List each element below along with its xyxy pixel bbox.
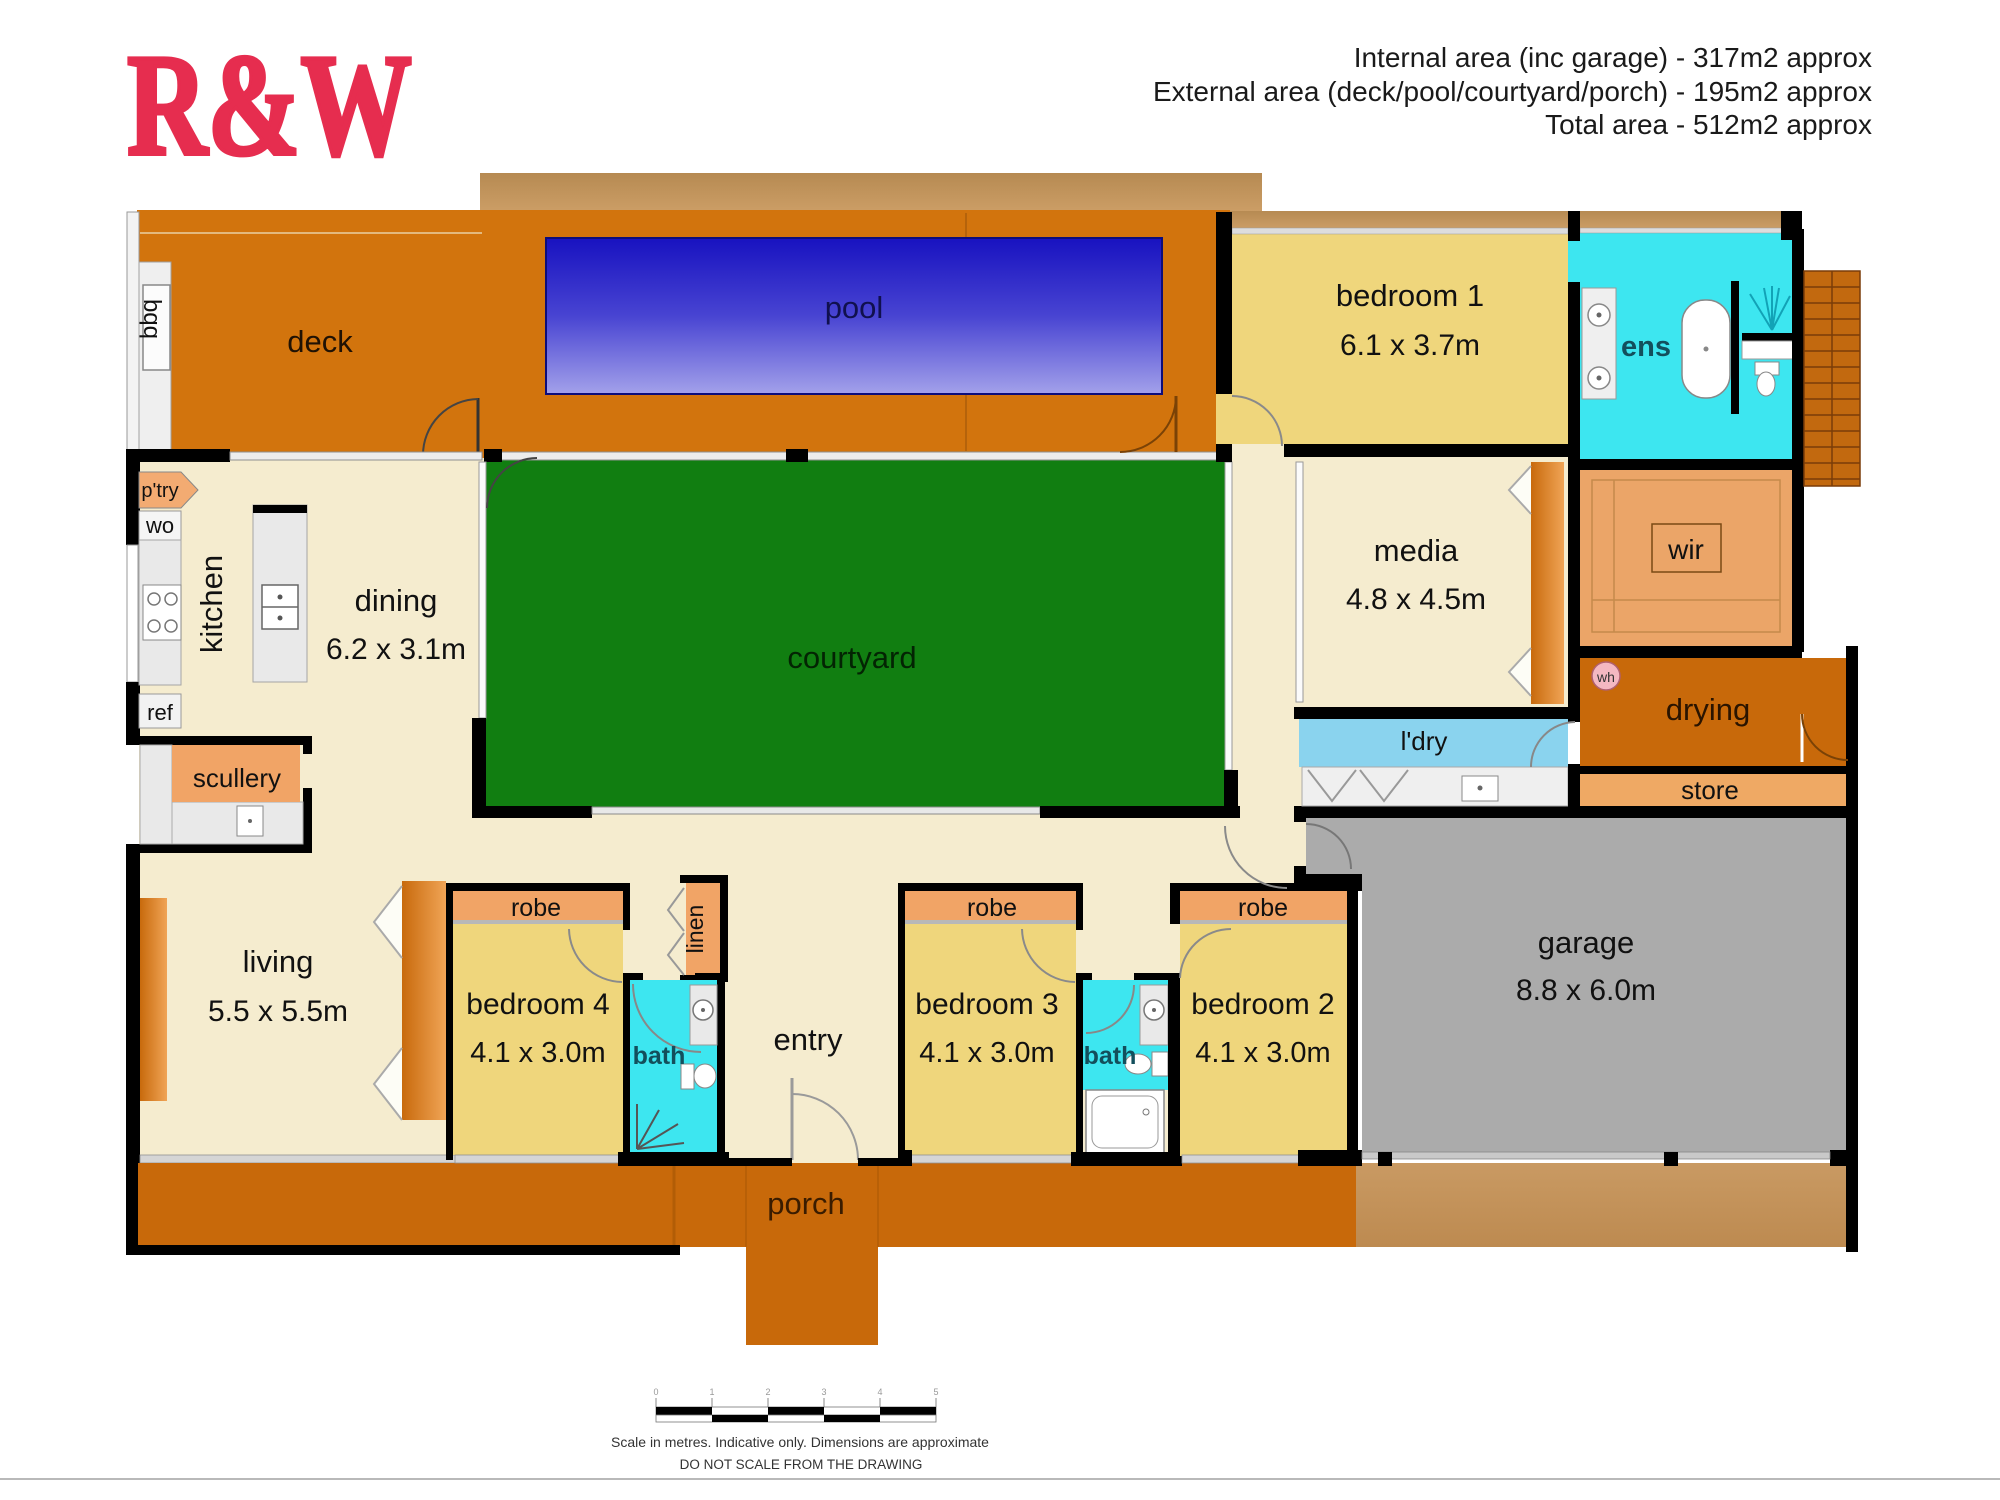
svg-text:p'try: p'try (141, 480, 178, 502)
svg-text:8.8 x 6.0m: 8.8 x 6.0m (1516, 974, 1656, 1007)
svg-text:living: living (243, 944, 314, 979)
svg-text:media: media (1374, 533, 1459, 568)
svg-text:courtyard: courtyard (787, 640, 916, 675)
svg-text:4.8 x 4.5m: 4.8 x 4.5m (1346, 583, 1486, 616)
svg-text:0: 0 (653, 1387, 658, 1397)
svg-text:3: 3 (821, 1387, 826, 1397)
svg-text:wir: wir (1667, 534, 1704, 565)
svg-text:drying: drying (1666, 692, 1750, 727)
svg-text:ref: ref (147, 700, 174, 725)
svg-text:Scale in metres. Indicative on: Scale in metres. Indicative only. Dimens… (611, 1434, 989, 1450)
svg-text:bath: bath (1084, 1042, 1137, 1070)
svg-text:scullery: scullery (193, 763, 281, 793)
svg-text:4.1 x 3.0m: 4.1 x 3.0m (470, 1037, 605, 1069)
svg-text:linen: linen (682, 905, 708, 954)
svg-text:dining: dining (355, 583, 438, 618)
svg-text:pool: pool (825, 290, 884, 325)
svg-text:l'dry: l'dry (1401, 726, 1448, 756)
svg-text:Internal area (inc garage) - 3: Internal area (inc garage) - 317m2 appro… (1354, 42, 1872, 73)
svg-text:5.5 x 5.5m: 5.5 x 5.5m (208, 995, 348, 1028)
svg-text:6.2 x 3.1m: 6.2 x 3.1m (326, 633, 466, 666)
svg-text:entry: entry (774, 1022, 843, 1057)
svg-text:4: 4 (877, 1387, 882, 1397)
svg-text:garage: garage (1538, 925, 1635, 960)
svg-text:porch: porch (767, 1186, 845, 1221)
svg-text:1: 1 (709, 1387, 714, 1397)
svg-text:store: store (1681, 775, 1739, 805)
svg-text:External area (deck/pool/court: External area (deck/pool/courtyard/porch… (1153, 76, 1872, 107)
svg-text:kitchen: kitchen (194, 555, 229, 653)
svg-text:2: 2 (765, 1387, 770, 1397)
svg-text:robe: robe (967, 894, 1017, 922)
svg-text:robe: robe (511, 894, 561, 922)
svg-text:wo: wo (145, 513, 174, 538)
svg-text:bedroom 4: bedroom 4 (466, 988, 609, 1021)
svg-text:bedroom 2: bedroom 2 (1191, 988, 1334, 1021)
svg-text:bedroom 1: bedroom 1 (1336, 278, 1484, 313)
svg-text:deck: deck (287, 324, 353, 359)
svg-text:5: 5 (933, 1387, 938, 1397)
svg-text:6.1 x 3.7m: 6.1 x 3.7m (1340, 329, 1480, 362)
svg-text:bedroom 3: bedroom 3 (915, 988, 1058, 1021)
svg-text:R&W: R&W (127, 24, 412, 186)
svg-text:Total area - 512m2 approx: Total area - 512m2 approx (1545, 109, 1872, 140)
svg-text:4.1 x 3.0m: 4.1 x 3.0m (919, 1037, 1054, 1069)
svg-text:ens: ens (1621, 331, 1671, 363)
svg-text:robe: robe (1238, 894, 1288, 922)
svg-text:DO NOT SCALE FROM THE DRAWING: DO NOT SCALE FROM THE DRAWING (680, 1457, 923, 1472)
svg-text:bbq: bbq (136, 299, 163, 339)
svg-text:wh: wh (1596, 669, 1615, 685)
svg-text:bath: bath (633, 1042, 686, 1070)
svg-text:4.1 x 3.0m: 4.1 x 3.0m (1195, 1037, 1330, 1069)
